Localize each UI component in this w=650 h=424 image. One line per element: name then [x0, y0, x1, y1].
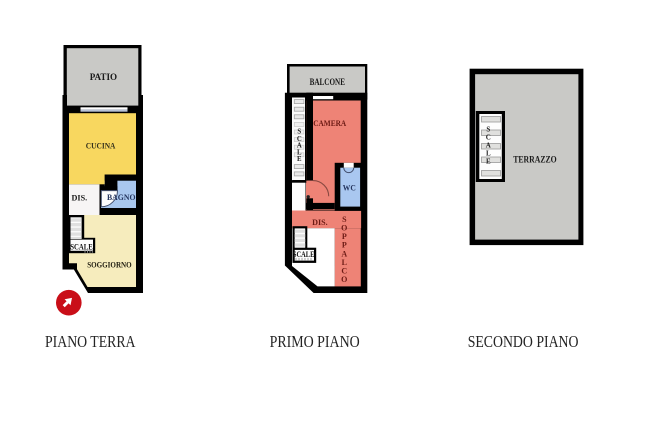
svg-text:CUCINA: CUCINA [86, 140, 116, 150]
svg-text:PIANO TERRA: PIANO TERRA [45, 332, 136, 351]
svg-text:DIS.: DIS. [312, 218, 328, 227]
svg-text:DIS.: DIS. [72, 192, 88, 202]
svg-text:S: S [486, 126, 490, 134]
svg-text:O: O [341, 275, 347, 284]
svg-text:BAGNO: BAGNO [107, 193, 136, 202]
svg-text:SECONDO PIANO: SECONDO PIANO [468, 332, 579, 351]
svg-text:TERRAZZO: TERRAZZO [513, 156, 557, 166]
svg-text:PATIO: PATIO [90, 73, 117, 83]
svg-text:C: C [486, 134, 491, 142]
svg-text:SCALE: SCALE [293, 250, 315, 259]
svg-text:E: E [297, 156, 302, 163]
svg-text:A: A [486, 142, 491, 150]
svg-text:CAMERA: CAMERA [313, 119, 346, 128]
svg-text:S: S [297, 129, 301, 136]
svg-text:E: E [486, 158, 491, 166]
svg-text:WC: WC [343, 184, 356, 193]
svg-text:L: L [486, 150, 491, 158]
svg-text:BALCONE: BALCONE [310, 77, 345, 87]
svg-text:PRIMO PIANO: PRIMO PIANO [270, 332, 360, 351]
svg-text:SCALE: SCALE [70, 241, 93, 251]
svg-text:SOGGIORNO: SOGGIORNO [87, 259, 132, 269]
